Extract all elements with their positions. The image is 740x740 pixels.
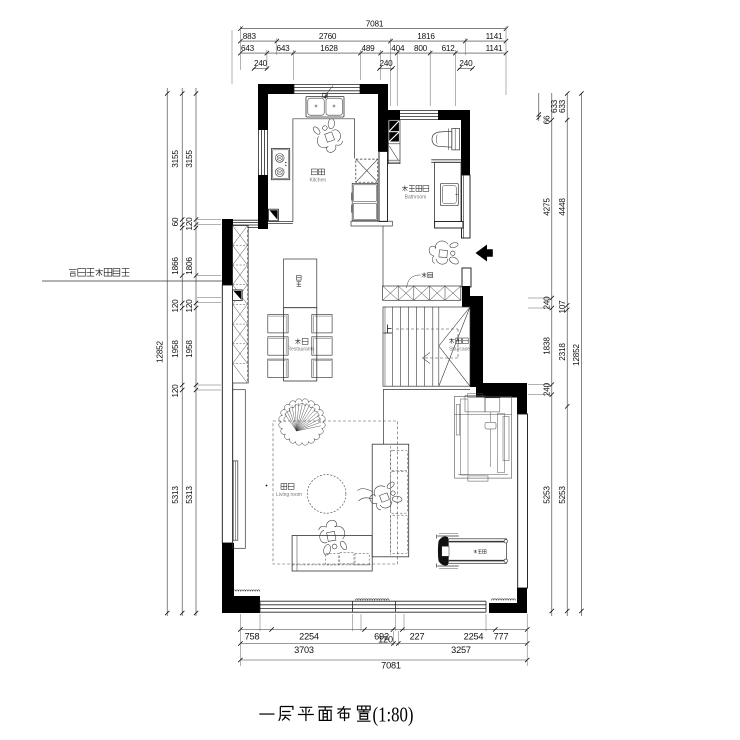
svg-text:2254: 2254 — [299, 632, 319, 642]
svg-text:1958: 1958 — [171, 340, 180, 358]
svg-text:Kitchen: Kitchen — [309, 178, 326, 184]
svg-text:643: 643 — [241, 44, 255, 53]
svg-text:883: 883 — [243, 32, 257, 41]
svg-text:240: 240 — [379, 59, 393, 68]
svg-text:60: 60 — [171, 217, 180, 226]
svg-text:633: 633 — [558, 99, 567, 113]
svg-text:3257: 3257 — [451, 645, 471, 655]
svg-text:1958: 1958 — [185, 340, 194, 358]
svg-text:12852: 12852 — [572, 343, 581, 365]
svg-text:2254: 2254 — [464, 632, 484, 642]
svg-text:777: 777 — [494, 632, 509, 642]
svg-text:3155: 3155 — [171, 150, 180, 168]
svg-text:1866: 1866 — [171, 257, 180, 275]
svg-text:4448: 4448 — [558, 198, 567, 216]
svg-text:120: 120 — [185, 299, 194, 313]
svg-text:2760: 2760 — [319, 32, 337, 41]
svg-text:227: 227 — [410, 632, 425, 642]
svg-text:5253: 5253 — [543, 486, 552, 504]
svg-text:1838: 1838 — [543, 337, 552, 355]
svg-text:5253: 5253 — [558, 486, 567, 504]
svg-text:758: 758 — [245, 632, 260, 642]
svg-text:(1:80): (1:80) — [373, 702, 414, 726]
svg-text:5313: 5313 — [185, 486, 194, 504]
svg-text:800: 800 — [414, 44, 428, 53]
svg-text:612: 612 — [442, 44, 456, 53]
svg-text:404: 404 — [391, 44, 405, 53]
svg-text:240: 240 — [543, 296, 552, 310]
svg-text:Bathroom: Bathroom — [405, 195, 427, 201]
svg-text:7081: 7081 — [381, 661, 401, 671]
svg-text:240: 240 — [459, 59, 473, 68]
svg-text:3703: 3703 — [294, 645, 314, 655]
svg-text:Restaurants: Restaurants — [288, 347, 315, 353]
svg-text:107: 107 — [558, 300, 567, 314]
svg-text:2318: 2318 — [558, 343, 567, 361]
svg-text:7081: 7081 — [366, 19, 384, 28]
svg-text:66: 66 — [543, 115, 552, 124]
svg-text:1816: 1816 — [417, 32, 435, 41]
svg-text:120: 120 — [171, 384, 180, 398]
svg-text:120: 120 — [171, 299, 180, 313]
svg-text:240: 240 — [543, 382, 552, 396]
svg-text:489: 489 — [361, 44, 375, 53]
svg-text:Staircase: Staircase — [449, 347, 470, 353]
svg-text:5313: 5313 — [171, 486, 180, 504]
svg-text:12852: 12852 — [156, 340, 165, 362]
svg-text:1141: 1141 — [486, 44, 503, 53]
svg-text:1141: 1141 — [486, 32, 503, 41]
svg-text:120: 120 — [185, 217, 194, 231]
svg-text:Living room: Living room — [276, 492, 302, 498]
svg-text:4275: 4275 — [543, 198, 552, 216]
svg-text:240: 240 — [254, 59, 268, 68]
svg-text:120: 120 — [378, 635, 393, 645]
svg-text:1628: 1628 — [320, 44, 338, 53]
svg-text:643: 643 — [276, 44, 290, 53]
svg-text:3155: 3155 — [185, 150, 194, 168]
svg-text:1806: 1806 — [185, 257, 194, 275]
